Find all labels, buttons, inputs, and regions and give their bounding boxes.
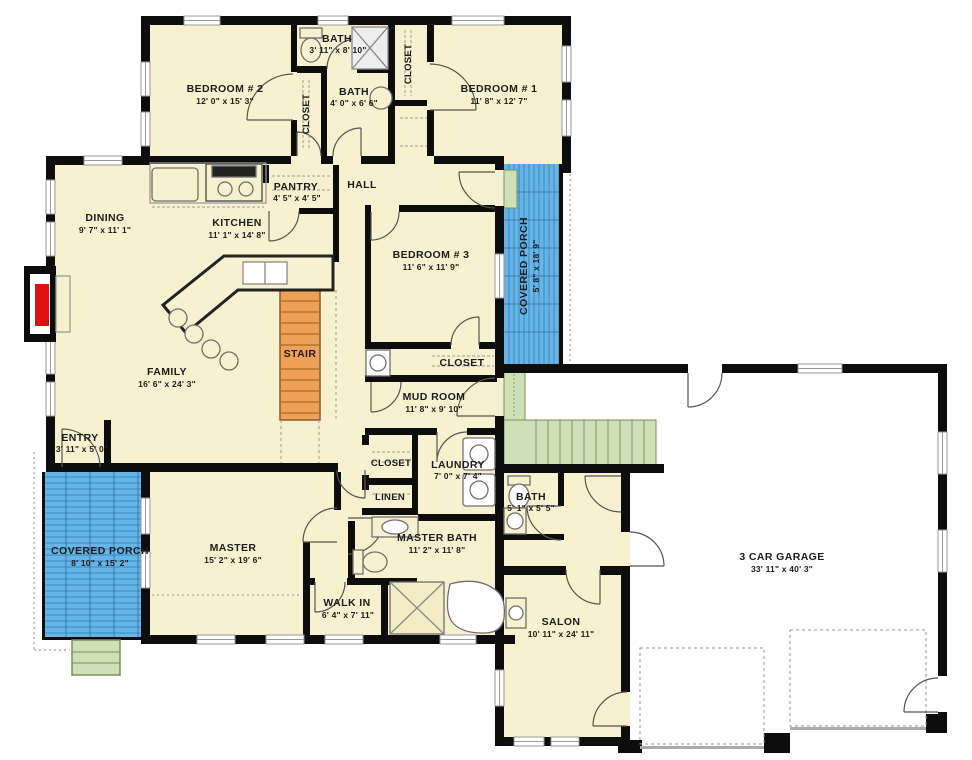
room-dims-bath-2: 4' 0" x 6' 6" — [330, 98, 378, 108]
room-label-closet-bedroom3: CLOSET — [440, 357, 485, 369]
room-dims-covered-porch-bl: 8' 10" x 15' 2" — [71, 558, 129, 568]
room-dims-kitchen: 11' 1" x 14' 8" — [208, 230, 265, 240]
kitchen-counter — [150, 163, 266, 203]
room-label-bath-3: BATH — [516, 491, 546, 503]
garage-doors — [640, 630, 926, 749]
room-dims-master-bath: 11' 2" x 11' 8" — [409, 545, 466, 555]
room-dims-bedroom-3: 11' 6" x 11' 9" — [403, 262, 460, 272]
room-dims-dining: 9' 7" x 11' 1" — [79, 225, 131, 235]
room-label-bedroom-3: BEDROOM # 3 — [393, 249, 470, 261]
stool-icon — [169, 309, 187, 327]
toilet-bowl-icon — [363, 552, 387, 572]
room-label-mud-room: MUD ROOM — [403, 391, 466, 403]
stove-icon — [206, 164, 262, 201]
room-label-walk-in: WALK IN — [323, 597, 370, 609]
floor-plan-page: BEDROOM # 2 12' 0" x 15' 3" BATH 3' 11" … — [0, 0, 972, 760]
room-label-kitchen: KITCHEN — [212, 217, 261, 229]
room-dims-bedroom-1: 11' 8" x 12' 7" — [470, 96, 527, 106]
master-shower-icon — [390, 582, 444, 634]
room-label-bath-1: BATH — [322, 33, 352, 45]
room-label-covered-porch-right: COVERED PORCH — [518, 217, 530, 315]
fridge-icon — [152, 168, 198, 201]
room-label-closet-2: CLOSET — [403, 44, 414, 84]
room-dims-salon: 10' 11" x 24' 11" — [528, 629, 595, 639]
room-dims-walk-in: 6' 4" x 7' 11" — [322, 610, 374, 620]
stool-icon — [185, 325, 203, 343]
room-dims-covered-porch-right: 5' 8" x 18' 9" — [531, 240, 541, 293]
stool-icon — [202, 340, 220, 358]
room-label-closet-hall: CLOSET — [371, 458, 411, 469]
room-label-covered-porch-bl: COVERED PORCH — [51, 545, 149, 557]
toilet-tank-icon — [300, 28, 322, 38]
mud-room-steps — [504, 372, 656, 466]
room-label-master-bath: MASTER BATH — [397, 532, 477, 544]
room-dims-laundry: 7' 0" x 7' 4" — [434, 471, 482, 481]
room-label-garage: 3 CAR GARAGE — [739, 551, 824, 563]
room-dims-pantry: 4' 5" x 4' 5" — [273, 193, 321, 203]
room-dims-garage: 33' 11" x 40' 3" — [751, 564, 813, 574]
floor-plan-canvas: BEDROOM # 2 12' 0" x 15' 3" BATH 3' 11" … — [0, 0, 972, 760]
room-label-bedroom-2: BEDROOM # 2 — [187, 83, 264, 95]
room-dims-bath-3: 5' 1" x 5' 5" — [507, 503, 555, 513]
room-label-pantry: PANTRY — [274, 181, 318, 193]
room-dims-bath-1: 3' 11" x 8' 10" — [309, 45, 366, 55]
room-label-entry: ENTRY — [61, 432, 98, 444]
room-dims-family: 16' 6" x 24' 3" — [138, 379, 196, 389]
room-label-bedroom-1: BEDROOM # 1 — [461, 83, 538, 95]
room-label-salon: SALON — [542, 616, 581, 628]
room-dims-mud-room: 11' 8" x 9' 10" — [405, 404, 462, 414]
room-label-dining: DINING — [85, 212, 124, 224]
room-label-laundry: LAUNDRY — [431, 459, 485, 471]
room-label-master: MASTER — [210, 542, 257, 554]
room-dims-entry: 3' 11" x 5' 0" — [56, 444, 108, 454]
porch-steps — [72, 640, 120, 675]
water-heater-icon — [366, 350, 390, 376]
salon-sink-icon — [506, 598, 526, 628]
room-label-bath-2: BATH — [339, 86, 369, 98]
room-dims-master: 15' 2" x 19' 6" — [204, 555, 262, 565]
toilet-tank-icon — [353, 550, 363, 574]
room-label-closet-1: CLOSET — [301, 94, 312, 134]
stool-icon — [220, 352, 238, 370]
room-label-family: FAMILY — [147, 366, 187, 378]
room-label-stair: STAIR — [284, 348, 317, 360]
room-dims-bedroom-2: 12' 0" x 15' 3" — [196, 96, 254, 106]
sink-icon — [507, 513, 523, 529]
room-label-hall: HALL — [347, 179, 377, 191]
room-label-linen: LINEN — [375, 492, 405, 503]
